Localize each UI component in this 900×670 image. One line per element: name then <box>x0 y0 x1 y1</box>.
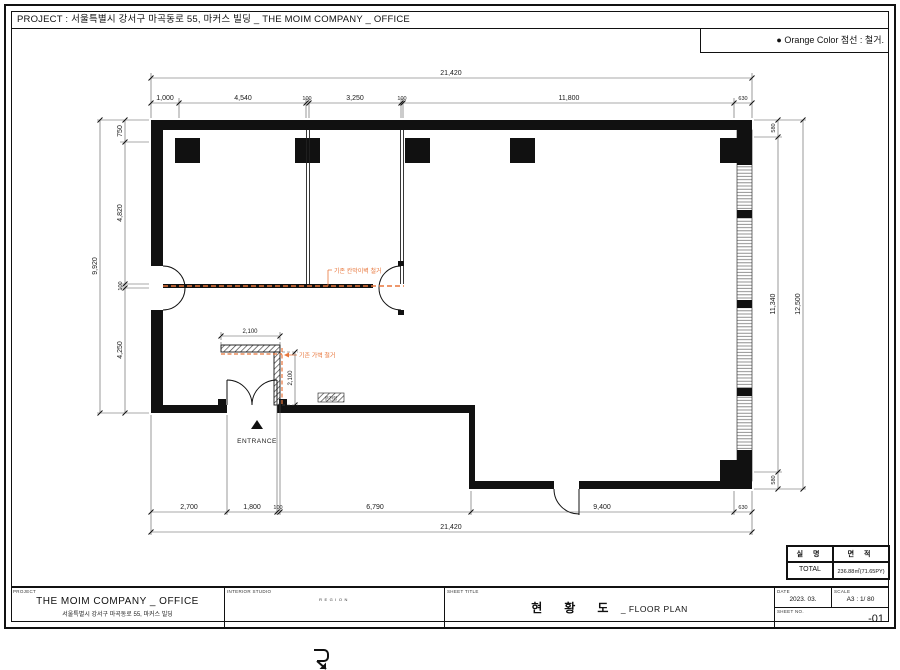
panel-box: 분전함 <box>318 393 344 402</box>
area-row-name: TOTAL <box>787 562 833 579</box>
interior-partitions <box>307 130 404 284</box>
dim-right-overall: 12,500 <box>795 293 802 315</box>
dim: 100 <box>397 96 406 102</box>
dim-gawall-height: 2,100 <box>288 370 294 386</box>
date-value: 2023. 03. <box>789 596 816 603</box>
sheet-title-english: _ FLOOR PLAN <box>621 604 688 614</box>
dim-left-overall: 9,920 <box>92 257 99 275</box>
scale-cell: SCALE A3 : 1/ 80 <box>832 588 889 607</box>
dim: 750 <box>117 125 124 137</box>
dim: 4,250 <box>117 341 124 359</box>
sheet-title-korean: 현황도 <box>531 599 630 616</box>
table-row: TOTAL 236.88㎡(71.65PY) <box>787 562 889 579</box>
dim: 2,700 <box>180 504 198 511</box>
area-header-area: 면 적 <box>833 546 889 562</box>
dim-top-overall: 21,420 <box>440 70 462 77</box>
demolition-legend: ● Orange Color 점선 : 철거. <box>700 28 889 53</box>
dim: 11,340 <box>770 293 777 314</box>
area-table: 실 명 면 적 TOTAL 236.88㎡(71.65PY) <box>786 545 890 580</box>
project-cell-label: PROJECT <box>13 589 36 594</box>
dimension-lines <box>97 73 806 535</box>
dim: 630 <box>738 505 747 511</box>
dim: 100 <box>302 96 311 102</box>
date-label: DATE <box>777 589 790 594</box>
project-title-bar: PROJECT : 서울특별시 강서구 마곡동로 55, 마커스 빌딩 _ TH… <box>11 11 889 29</box>
dim: 580 <box>771 475 777 484</box>
dim: 630 <box>738 96 747 102</box>
dim: 4,540 <box>234 95 252 102</box>
area-row-value: 236.88㎡(71.65PY) <box>833 562 889 579</box>
title-block: PROJECT THE MOIM COMPANY _ OFFICE 서울특별시 … <box>11 586 889 627</box>
studio-cell-label: INTERIOR STUDIO <box>227 589 271 594</box>
project-title: PROJECT : 서울특별시 강서구 마곡동로 55, 마커스 빌딩 _ TH… <box>17 14 410 25</box>
sheet-number-cell: SHEET NO. -01 <box>775 608 889 627</box>
panel-label: 분전함 <box>325 395 337 401</box>
region-logo-icon <box>310 648 332 670</box>
dim-bottom-overall: 21,420 <box>440 524 462 531</box>
dim: 100 <box>273 505 282 511</box>
titleblock-studio-cell: INTERIOR STUDIO REGION <box>225 588 445 627</box>
dim: 100 <box>118 281 124 290</box>
floor-plan-drawing: 분전함 ENTRANCE 기존 칸막이벽 철거 기존 <box>85 60 820 540</box>
sheet-number-label: SHEET NO. <box>777 609 804 614</box>
dimension-ticks <box>98 76 806 535</box>
dim: 4,820 <box>117 204 124 222</box>
right-window-wall <box>737 120 752 489</box>
exterior-walls <box>151 120 752 489</box>
studio-logo: REGION <box>319 596 350 602</box>
columns <box>175 138 745 485</box>
project-address: 서울특별시 강서구 마곡동로 55, 마커스 빌딩 <box>11 609 224 618</box>
doors <box>163 266 579 515</box>
date-cell: DATE 2023. 03. <box>775 588 832 607</box>
sheet-number-value: -01 <box>868 613 884 625</box>
dim: 9,400 <box>593 504 611 511</box>
studio-name: REGION <box>319 597 350 602</box>
legend-text: ● Orange Color 점선 : 철거. <box>776 35 884 45</box>
dim-gawall-width: 2,100 <box>242 329 258 335</box>
sheet-cell-label: SHEET TITLE <box>447 589 479 594</box>
dim: 580 <box>771 123 777 132</box>
dim: 11,800 <box>559 95 580 102</box>
scale-label: SCALE <box>834 589 850 594</box>
dim: 3,250 <box>346 95 364 102</box>
scale-value: A3 : 1/ 80 <box>847 596 875 603</box>
dim: 6,790 <box>366 504 384 511</box>
entrance-label: ENTRANCE <box>237 438 277 445</box>
dim: 1,000 <box>156 95 174 102</box>
titleblock-project-cell: PROJECT THE MOIM COMPANY _ OFFICE 서울특별시 … <box>11 588 225 627</box>
dim: 1,800 <box>243 504 261 511</box>
entrance-marker: ENTRANCE <box>237 420 277 445</box>
area-header-name: 실 명 <box>787 546 833 562</box>
demo-gawall-label: 기존 가벽 철거 <box>299 352 335 360</box>
titleblock-sheet-cell: SHEET TITLE 현황도 _ FLOOR PLAN <box>445 588 775 627</box>
project-name: THE MOIM COMPANY _ OFFICE <box>11 596 224 607</box>
demo-wall-label: 기존 칸막이벽 철거 <box>334 267 382 275</box>
titleblock-meta-cell: DATE 2023. 03. SCALE A3 : 1/ 80 SHEET NO… <box>775 588 889 627</box>
